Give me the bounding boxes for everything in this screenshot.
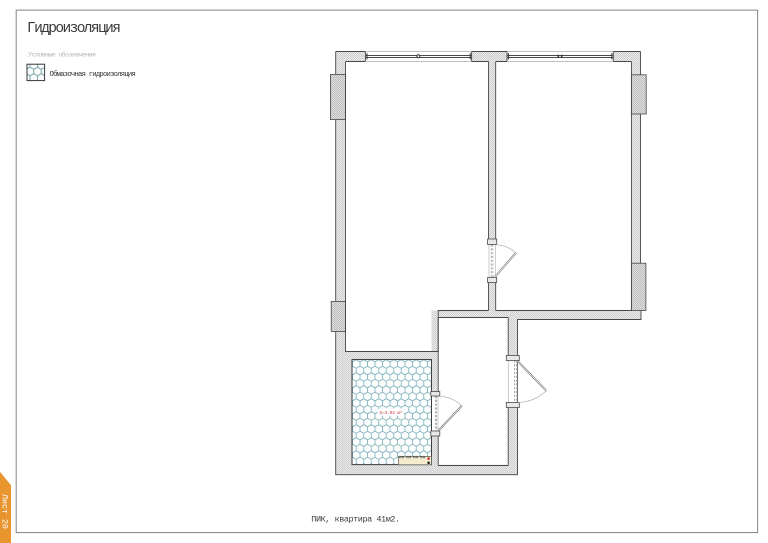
- svg-text:Обмазочная гидроизоляция: Обмазочная гидроизоляция: [50, 70, 136, 79]
- svg-text:Условные обозначения: Условные обозначения: [28, 50, 96, 58]
- svg-text:ПИК, квартира 41м2.: ПИК, квартира 41м2.: [311, 515, 399, 525]
- svg-text:S=3.93 м²: S=3.93 м²: [379, 410, 402, 416]
- svg-text:Гидроизоляция: Гидроизоляция: [27, 21, 120, 37]
- svg-text:Лист 20: Лист 20: [0, 493, 8, 529]
